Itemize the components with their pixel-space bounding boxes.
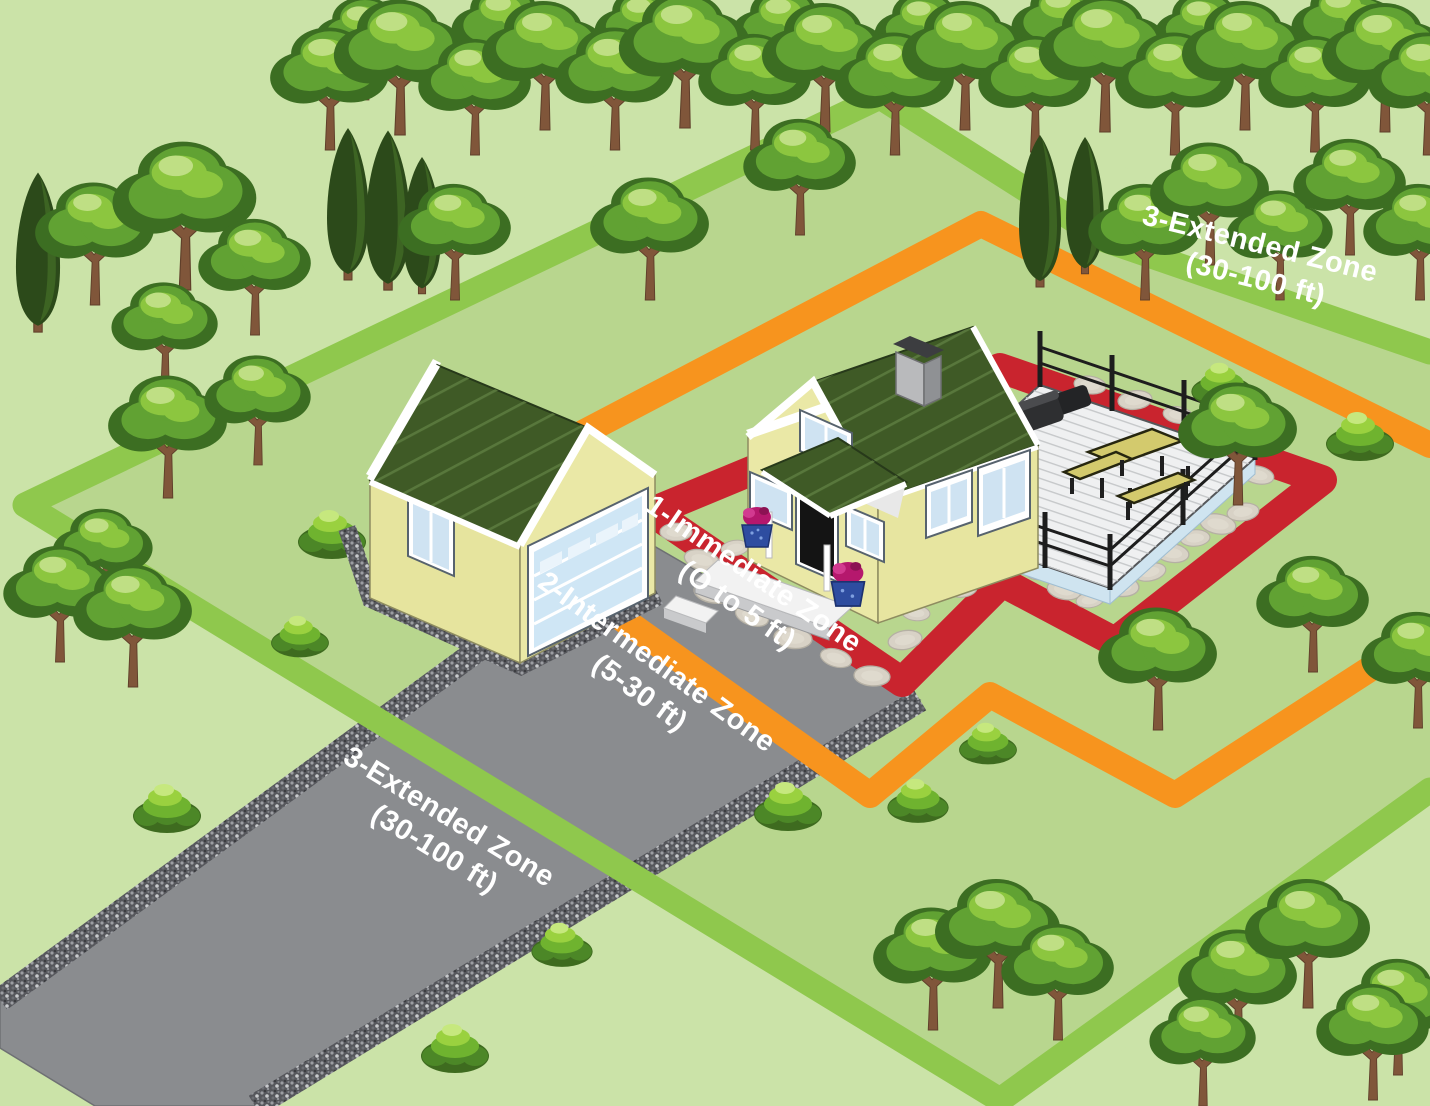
defensible-space-illustration: 3-Extended Zone (30-100 ft) 1-Immediate … [0,0,1430,1106]
flower-planter-right [832,562,865,606]
flower-planter-left [742,507,772,547]
scene: 3-Extended Zone (30-100 ft) 1-Immediate … [0,0,1430,1106]
